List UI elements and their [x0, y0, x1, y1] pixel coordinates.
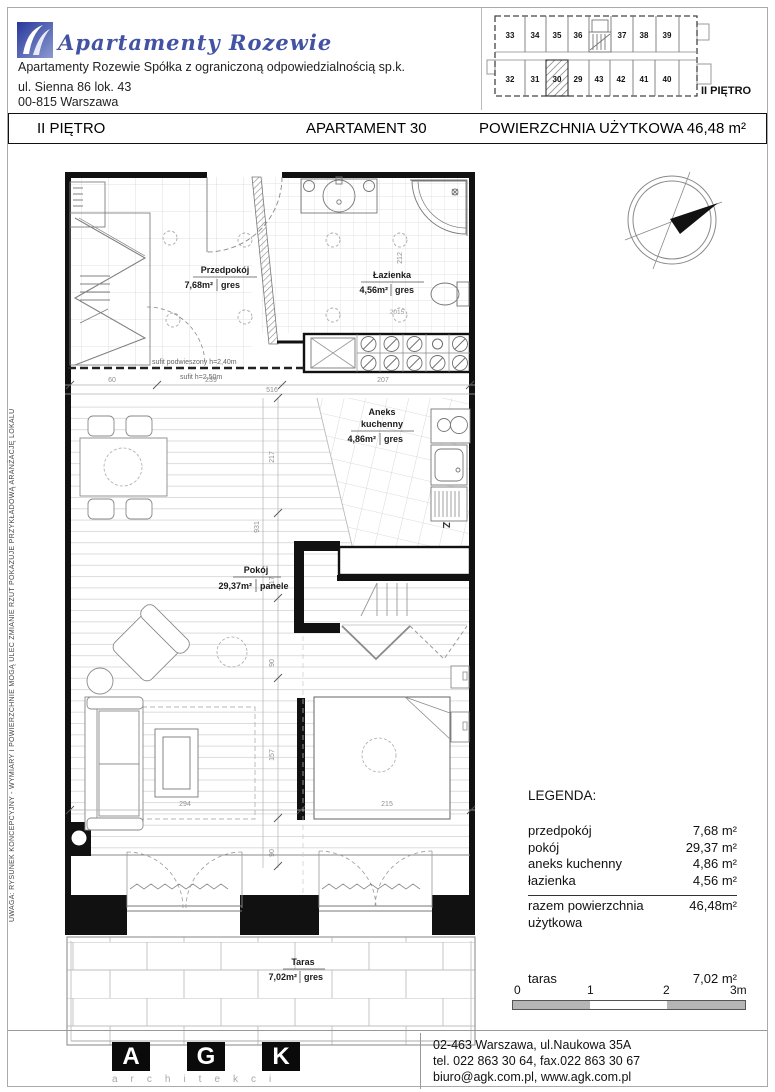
studio-logo: A G K architekci [112, 1042, 352, 1085]
scale-tick: 2 [663, 983, 670, 997]
room-name: Łazienka [373, 270, 412, 280]
company-address-city: 00-815 Warszawa [18, 95, 118, 109]
brand-wordmark: Apartamenty Rozewie [58, 30, 332, 55]
legend-title: LEGENDA: [528, 788, 737, 803]
room-name: Aneks [368, 407, 395, 417]
unit-label: 31 [531, 75, 540, 84]
studio-letter-g: G [187, 1042, 225, 1071]
dim: 212 [397, 252, 404, 264]
scale-bar: 0 1 2 3m [512, 983, 748, 1010]
studio-caption: architekci [112, 1074, 352, 1085]
storage-alcove [304, 334, 470, 372]
bed-partition [297, 698, 305, 820]
legend-total-value: 46,48m² [689, 898, 737, 931]
room-area: 29,37m² [218, 581, 252, 591]
title-usable-area: POWIERZCHNIA UŻYTKOWA 46,48 m² [479, 120, 746, 137]
legend-value: 7,68 m² [693, 823, 737, 840]
dim: 931 [254, 521, 261, 533]
dim: 90 [269, 659, 276, 667]
unit-label: 42 [617, 75, 626, 84]
unit-label: 39 [663, 31, 672, 40]
scale-ticks: 0 1 2 3m [512, 983, 748, 998]
company-address-street: ul. Sienna 86 lok. 43 [18, 80, 131, 94]
terrace [67, 937, 475, 1045]
dim: 294 [179, 801, 191, 808]
studio-address-line3: biuro@agk.com.pl, www.agk.com.pl [433, 1069, 640, 1085]
compass-icon [620, 166, 725, 274]
brand-logo-icon [17, 22, 53, 58]
unit-label: 40 [663, 75, 672, 84]
dim: 217 [269, 451, 276, 463]
unit-label: 36 [574, 31, 583, 40]
legend-row: przedpokój 7,68 m² [528, 823, 737, 840]
disclaimer-note: UWAGA: RYSUNEK KONCEPCYJNY - WYMIARY I P… [9, 409, 16, 922]
legend-total-row: razem powierzchnia użytkowa 46,48m² [528, 895, 737, 931]
scale-tick: 3m [730, 983, 747, 997]
unit-label: 32 [506, 75, 515, 84]
room-floor: panele [260, 581, 289, 591]
ceiling-note-standard: sufit h=2,50m [180, 374, 222, 381]
unit-label: 30 [553, 75, 562, 84]
studio-address-line2: tel. 022 863 30 64, fax.022 863 30 67 [433, 1053, 640, 1069]
dim: 157 [269, 749, 276, 761]
title-apartment: APARTAMENT 30 [306, 120, 427, 137]
legend-label: pokój [528, 840, 559, 857]
studio-letter-a: A [112, 1042, 150, 1071]
room-area: 7,68m² [184, 280, 213, 290]
legend-row: łazienka 4,56 m² [528, 873, 737, 890]
room-name: Taras [291, 957, 314, 967]
footer-divider [8, 1030, 767, 1031]
scale-tick: 0 [514, 983, 521, 997]
room-floor: gres [384, 434, 403, 444]
room-name: Przedpokój [201, 265, 250, 275]
bedside-shelf [451, 712, 469, 742]
legend-value: 4,86 m² [693, 856, 737, 873]
kitchen [431, 409, 470, 521]
legend-row: aneks kuchenny 4,86 m² [528, 856, 737, 873]
room-floor: gres [221, 280, 240, 290]
title-floor: II PIĘTRO [37, 120, 105, 137]
title-bar: II PIĘTRO APARTAMENT 30 POWIERZCHNIA UŻY… [8, 113, 767, 144]
tv-unit [155, 729, 198, 797]
radiators [130, 884, 420, 889]
appliance-mark: Z [440, 522, 451, 528]
room-area: 7,02m² [268, 972, 297, 982]
unit-label: 41 [640, 75, 649, 84]
unit-label: 43 [595, 75, 604, 84]
dim: 60 [108, 377, 116, 384]
room-name: kuchenny [361, 419, 403, 429]
dim: 207 [377, 377, 389, 384]
dim: 2015 [390, 309, 405, 316]
dim: 215 [381, 801, 393, 808]
drainer [431, 487, 467, 521]
scale-bar-strip [512, 1000, 746, 1010]
legend-label: łazienka [528, 873, 576, 890]
unit-label: 29 [574, 75, 583, 84]
ceiling-note-suspended: sufit podwieszony h=2,40m [152, 359, 237, 366]
apartment-floorplan: Z [55, 158, 485, 1058]
floor-overview-miniplan: 33 34 35 36 37 38 39 32 31 30 29 43 42 4… [483, 4, 773, 110]
dining-table [80, 438, 167, 496]
room-area: 4,56m² [359, 285, 388, 295]
scale-tick: 1 [587, 983, 594, 997]
room-floor: gres [304, 972, 323, 982]
unit-label: 33 [506, 31, 515, 40]
room-area: 4,86m² [347, 434, 376, 444]
header-divider [481, 8, 482, 110]
unit-label: 37 [618, 31, 627, 40]
studio-address-line1: 02-463 Warszawa, ul.Naukowa 35A [433, 1037, 640, 1053]
miniplan-floor-label: II PIĘTRO [701, 85, 752, 97]
room-name: Pokój [244, 565, 269, 575]
studio-address: 02-463 Warszawa, ul.Naukowa 35A tel. 022… [433, 1037, 640, 1085]
legend-total-label: razem powierzchnia użytkowa [528, 898, 689, 931]
round-table [87, 668, 113, 694]
unit-label: 34 [531, 31, 540, 40]
unit-label: 38 [640, 31, 649, 40]
legend-label: aneks kuchenny [528, 856, 622, 873]
bedside-shelf [451, 666, 469, 688]
legend: LEGENDA: przedpokój 7,68 m² pokój 29,37 … [528, 788, 737, 988]
legend-label: przedpokój [528, 823, 592, 840]
stairwell [589, 20, 611, 52]
footer-vertical-divider [420, 1033, 421, 1089]
room-floor: gres [395, 285, 414, 295]
studio-letter-k: K [262, 1042, 300, 1071]
company-name: Apartamenty Rozewie Spółka z ograniczoną… [18, 60, 405, 74]
dim: 516 [266, 387, 278, 394]
legend-row: pokój 29,37 m² [528, 840, 737, 857]
unit-label: 35 [553, 31, 562, 40]
dim: 90 [269, 849, 276, 857]
legend-value: 4,56 m² [693, 873, 737, 890]
legend-value: 29,37 m² [686, 840, 737, 857]
